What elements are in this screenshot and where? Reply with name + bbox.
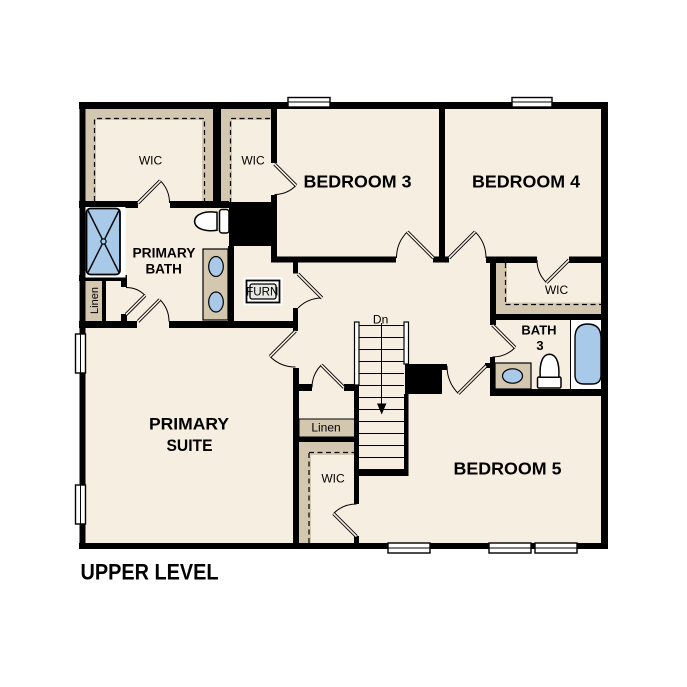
svg-text:FURN: FURN [246,285,278,298]
svg-text:WIC: WIC [545,283,569,297]
svg-text:BEDROOM 4: BEDROOM 4 [472,172,580,192]
svg-text:BATH: BATH [521,323,556,338]
svg-text:BATH: BATH [145,262,182,277]
svg-text:Linen: Linen [311,421,340,435]
svg-text:UPPER LEVEL: UPPER LEVEL [81,560,219,585]
svg-text:Linen: Linen [89,287,101,314]
svg-text:WIC: WIC [321,472,345,486]
svg-text:Dn: Dn [373,313,388,327]
svg-text:WIC: WIC [139,154,163,168]
svg-text:BEDROOM 5: BEDROOM 5 [454,459,562,479]
svg-text:BEDROOM 3: BEDROOM 3 [304,172,412,192]
svg-text:PRIMARY: PRIMARY [133,246,196,261]
svg-text:SUITE: SUITE [167,436,213,455]
svg-text:3: 3 [536,338,543,353]
svg-text:WIC: WIC [241,154,265,168]
svg-text:PRIMARY: PRIMARY [149,415,230,434]
